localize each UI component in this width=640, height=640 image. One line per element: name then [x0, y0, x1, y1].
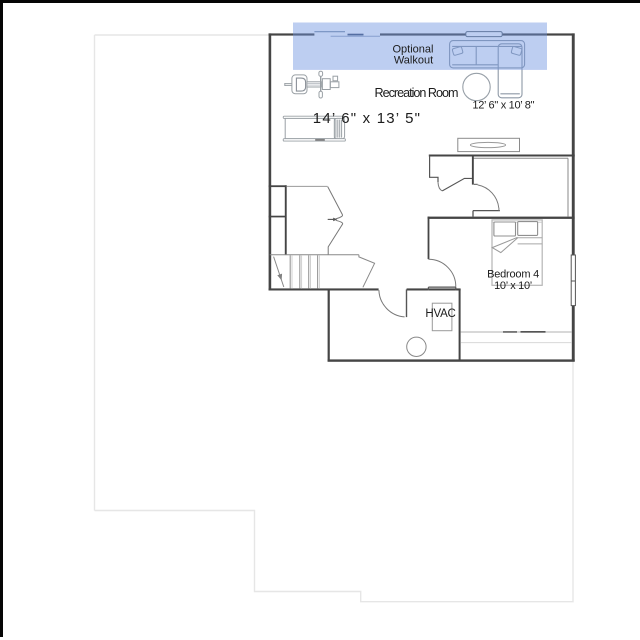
- svg-text:10’ x 10’: 10’ x 10’: [494, 280, 532, 292]
- svg-text:Recreation Room: Recreation Room: [375, 86, 459, 100]
- svg-text:14’ 6" x 13’ 5": 14’ 6" x 13’ 5": [313, 110, 421, 127]
- svg-text:Bedroom 4: Bedroom 4: [487, 269, 539, 281]
- svg-text:Walkout: Walkout: [394, 54, 433, 66]
- svg-text:12’ 6" x 10’ 8": 12’ 6" x 10’ 8": [472, 100, 534, 112]
- svg-text:HVAC: HVAC: [425, 308, 455, 320]
